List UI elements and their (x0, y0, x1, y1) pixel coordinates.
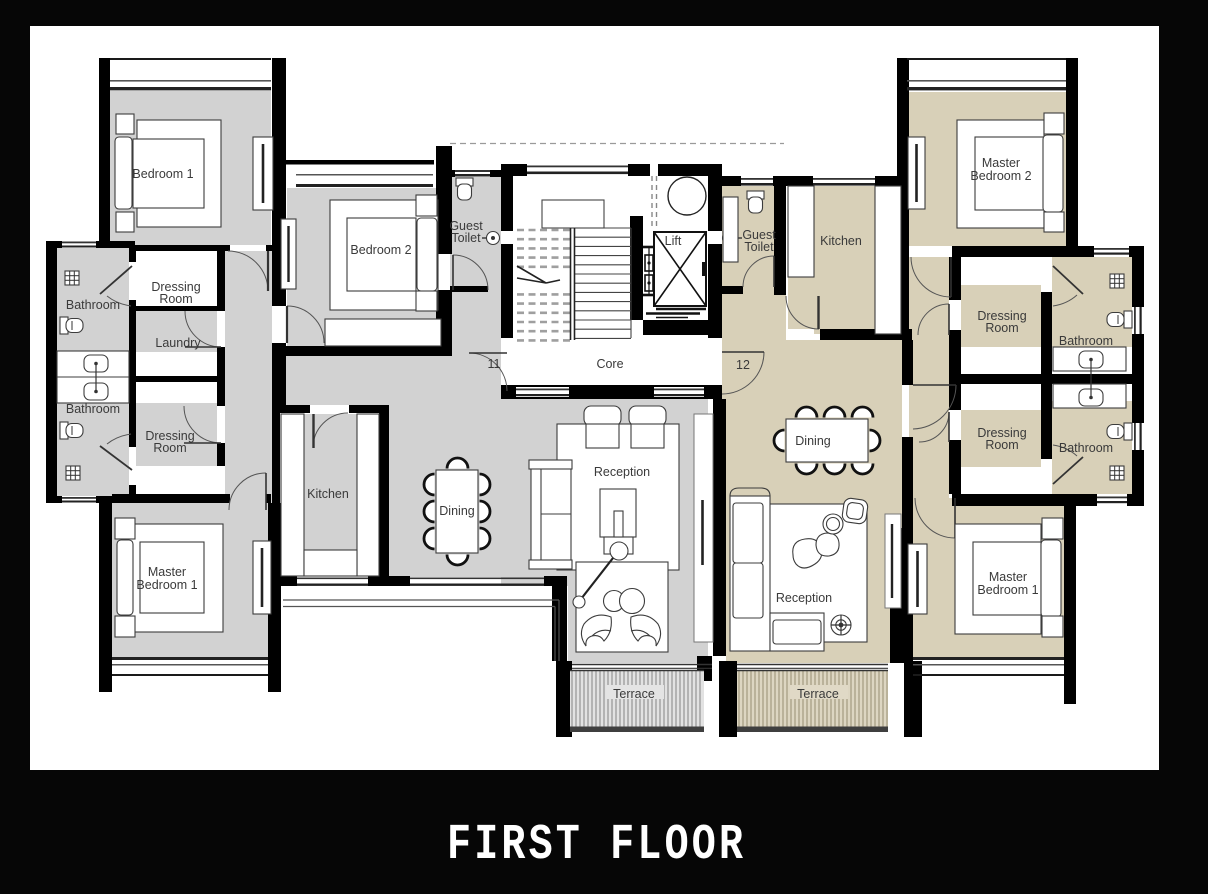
svg-text:Bathroom: Bathroom (1059, 441, 1113, 455)
svg-text:12: 12 (736, 358, 750, 372)
svg-text:Bedroom 2: Bedroom 2 (970, 169, 1031, 183)
svg-text:Master: Master (148, 565, 186, 579)
svg-text:Master: Master (989, 570, 1027, 584)
svg-text:Bedroom 2: Bedroom 2 (350, 243, 411, 257)
svg-text:Terrace: Terrace (613, 687, 655, 701)
svg-text:Room: Room (153, 441, 186, 455)
svg-text:Bathroom: Bathroom (66, 298, 120, 312)
svg-text:Reception: Reception (776, 591, 832, 605)
svg-text:Toilet: Toilet (744, 240, 774, 254)
svg-text:Room: Room (159, 292, 192, 306)
svg-text:Bedroom 1: Bedroom 1 (977, 583, 1038, 597)
svg-text:Master: Master (982, 156, 1020, 170)
svg-text:Core: Core (596, 357, 623, 371)
svg-text:Dining: Dining (439, 504, 474, 518)
svg-text:Terrace: Terrace (797, 687, 839, 701)
svg-text:Dining: Dining (795, 434, 830, 448)
svg-text:Bedroom 1: Bedroom 1 (136, 578, 197, 592)
svg-text:Bathroom: Bathroom (1059, 334, 1113, 348)
svg-text:Reception: Reception (594, 465, 650, 479)
svg-text:Bedroom 1: Bedroom 1 (132, 167, 193, 181)
svg-text:Lift: Lift (665, 234, 682, 248)
svg-text:Kitchen: Kitchen (307, 487, 349, 501)
svg-text:Kitchen: Kitchen (820, 234, 862, 248)
svg-text:Room: Room (985, 438, 1018, 452)
svg-text:FIRST FLOOR: FIRST FLOOR (447, 816, 746, 873)
svg-text:Bathroom: Bathroom (66, 402, 120, 416)
svg-text:Toilet: Toilet (451, 231, 481, 245)
svg-text:11: 11 (488, 357, 501, 371)
svg-text:Room: Room (985, 321, 1018, 335)
svg-text:Laundry: Laundry (155, 336, 201, 350)
